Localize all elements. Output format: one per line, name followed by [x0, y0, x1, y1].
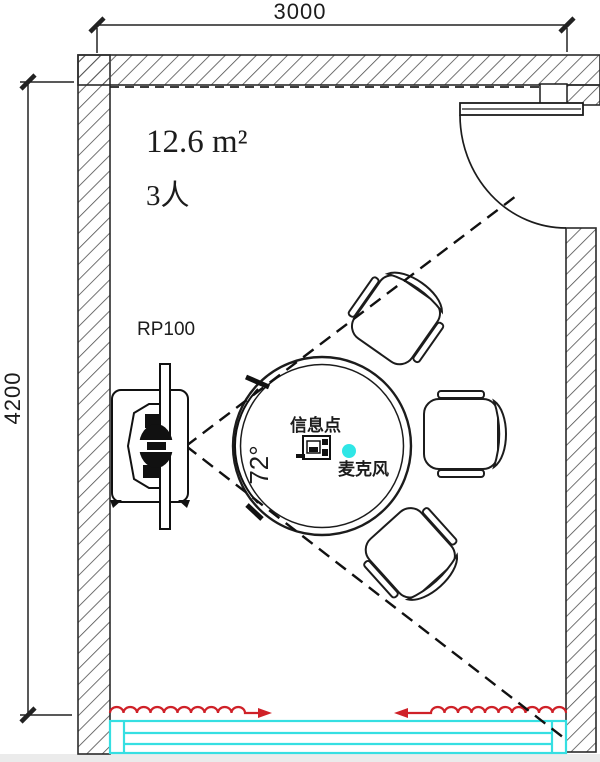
wall-right: [566, 228, 596, 752]
page-edge: [0, 754, 600, 762]
room-area-label: 12.6 m²: [146, 126, 248, 159]
chair-right: [424, 391, 506, 477]
wall-top-right-block: [566, 85, 600, 105]
device-model-label: RP100: [137, 320, 195, 339]
dimension-top-label: 3000: [230, 1, 370, 23]
curtain-squiggle-left: [110, 707, 258, 713]
wall-left: [78, 55, 110, 754]
window: [110, 721, 566, 753]
floor-plan: 3000 4200 12.6 m² 3人 RP100 72° 信息点 麦克风: [0, 0, 600, 762]
device-foot: [110, 500, 122, 508]
curtain-arrows: [110, 707, 566, 718]
curtain-arrowhead-left: [394, 708, 408, 718]
rp100-device: [110, 364, 190, 529]
curtain-arrowhead-right: [258, 708, 272, 718]
dimension-left-label: 4200: [2, 361, 24, 435]
device-foot: [178, 500, 190, 508]
room-capacity-label: 3人: [146, 182, 190, 211]
floor-plan-drawing: [0, 0, 600, 762]
view-angle-label: 72°: [246, 430, 272, 500]
info-point-label: 信息点: [290, 417, 341, 434]
door-jamb: [540, 84, 567, 105]
wall-top: [78, 55, 600, 85]
door: [460, 84, 583, 228]
microphone-dot: [342, 444, 356, 458]
door-swing-arc: [460, 115, 566, 228]
microphone-label: 麦克风: [338, 461, 389, 478]
curtain-squiggle-right: [408, 707, 566, 713]
